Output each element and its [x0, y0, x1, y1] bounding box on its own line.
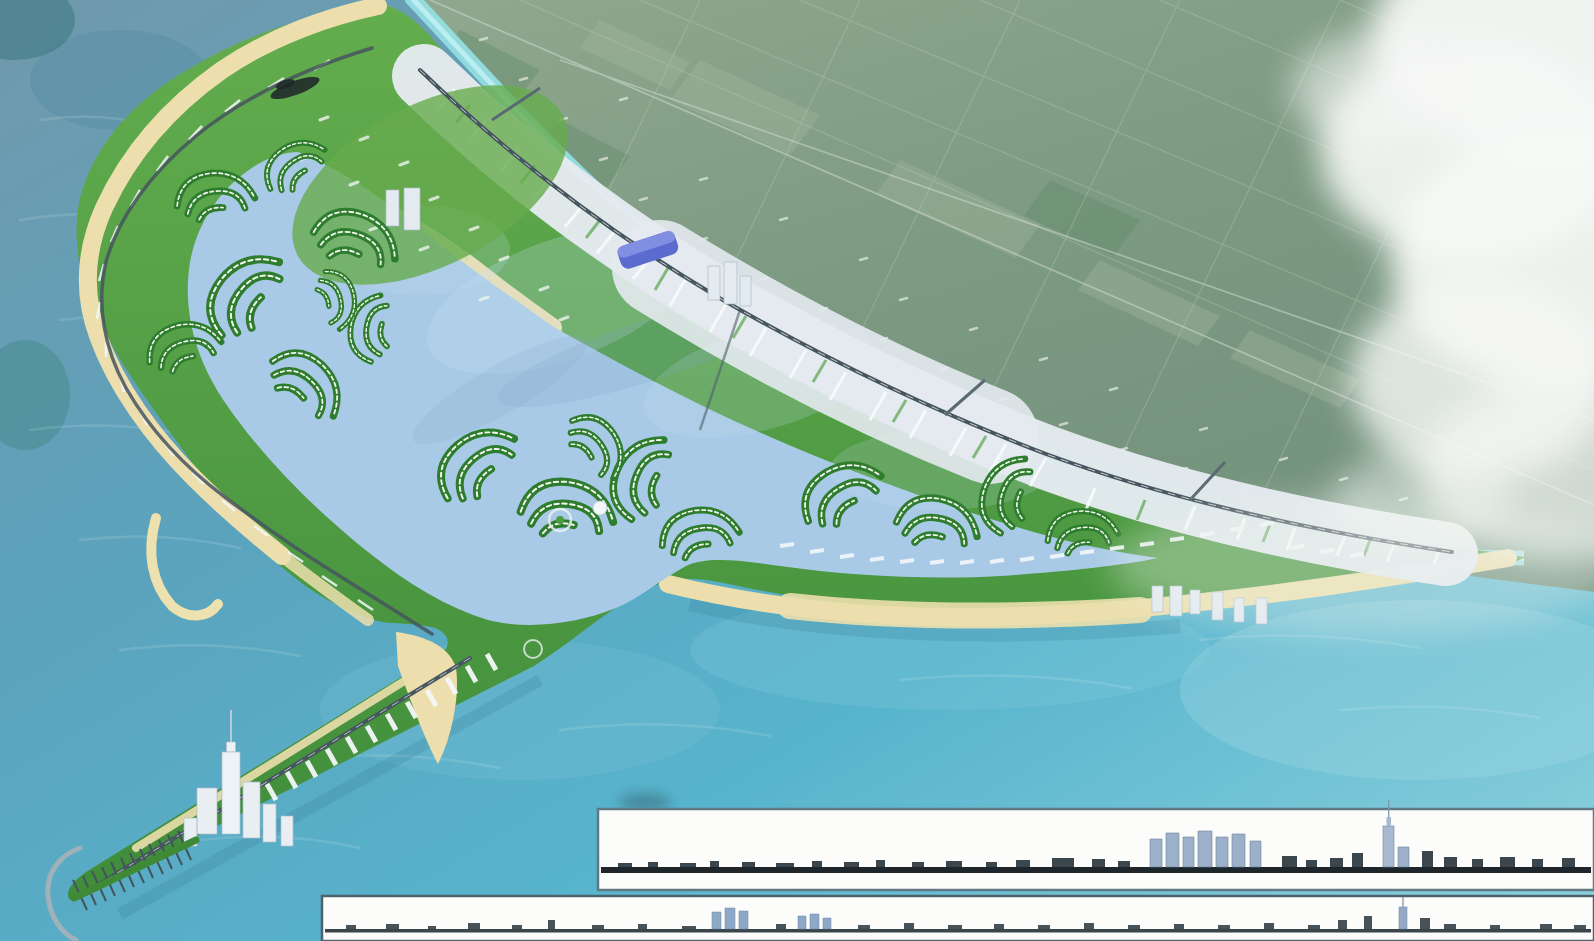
- panel-upper-spire-cap: [1387, 817, 1392, 826]
- white-dome: [593, 501, 607, 515]
- elevation-panel-lower: [322, 896, 1594, 941]
- panel-upper-baseline: [601, 867, 1591, 873]
- cbd-spire-cap: [227, 742, 236, 752]
- panel-upper-background: [598, 809, 1594, 890]
- panel-lower-baseline: [325, 929, 1591, 933]
- cloud-wisp: [1290, 30, 1470, 150]
- masterplan-rendering: Aerial masterplan rendering — crescent c…: [0, 0, 1594, 941]
- elevation-panel-upper: [598, 800, 1594, 890]
- south-beach-wide: [790, 606, 1140, 616]
- cbd-spire-tower: [222, 752, 240, 834]
- panel-lower-spire: [1399, 907, 1407, 929]
- roundabout-green: [556, 516, 564, 524]
- panel-upper-spire: [1383, 826, 1394, 867]
- masterplan-screenshot: Aerial masterplan rendering — crescent c…: [0, 0, 1594, 941]
